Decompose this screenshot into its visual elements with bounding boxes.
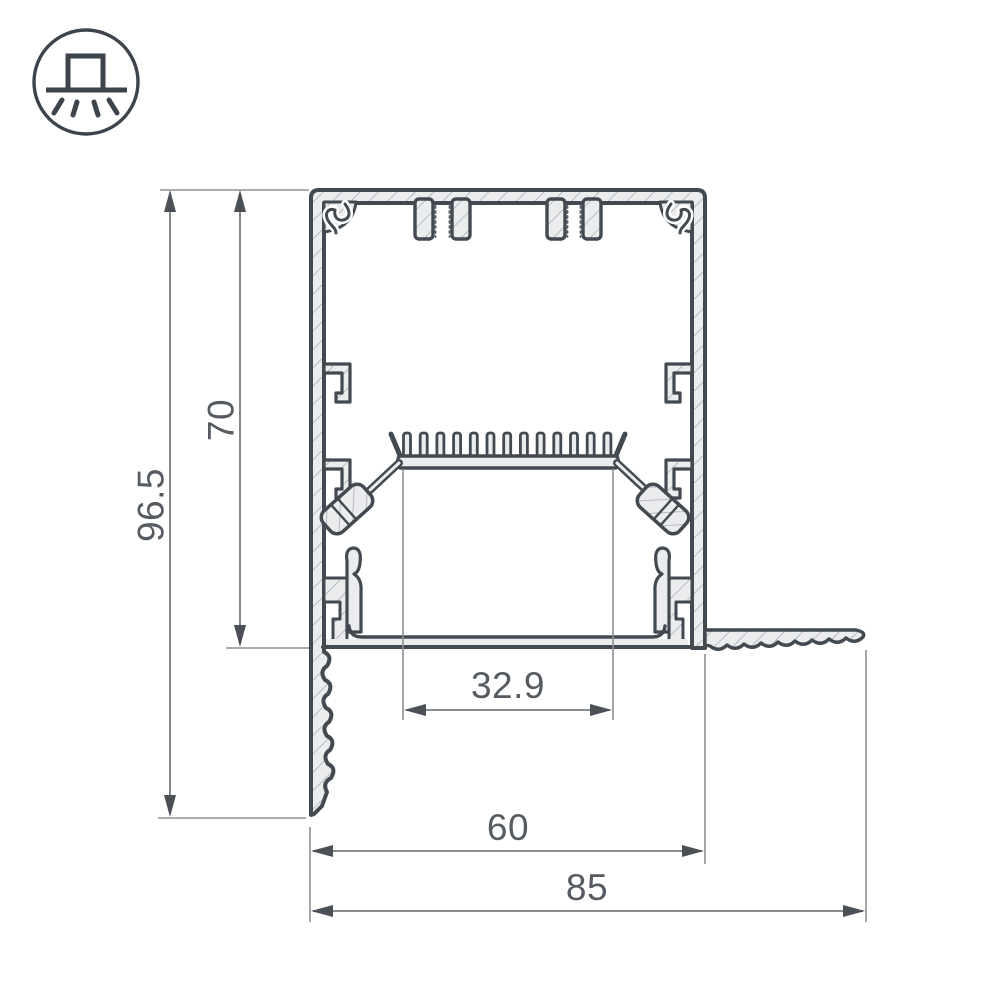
screw-groove-squiggle-right bbox=[667, 204, 690, 233]
arrow-up-icon bbox=[234, 190, 246, 212]
dimension-label-overall-width: 85 bbox=[566, 867, 608, 908]
icon-circle bbox=[34, 30, 138, 134]
corner-gussets bbox=[324, 202, 692, 233]
dimension-label-overall-height: 96.5 bbox=[131, 468, 172, 542]
led-plate bbox=[398, 456, 618, 468]
channel-lip-left bbox=[347, 548, 362, 632]
arrow-right-icon bbox=[843, 905, 865, 917]
dimension-overall-height: 96.5 bbox=[131, 190, 177, 817]
arrow-left-icon bbox=[311, 905, 333, 917]
dimension-overall-width: 85 bbox=[311, 867, 865, 917]
arrow-left-icon bbox=[404, 704, 426, 716]
dimension-body-width: 60 bbox=[311, 807, 704, 857]
led-plate-heatsink bbox=[369, 433, 647, 491]
arrow-left-icon bbox=[311, 845, 333, 857]
arrow-up-icon bbox=[164, 190, 176, 212]
dimension-body-height: 70 bbox=[201, 190, 247, 647]
dimension-label-body-width: 60 bbox=[487, 807, 529, 848]
heatsink-fins bbox=[404, 433, 611, 457]
arrow-down-icon bbox=[234, 625, 246, 647]
dimension-label-body-height: 70 bbox=[201, 399, 242, 441]
technical-drawing: 96.5 70 32.9 60 85 bbox=[0, 0, 1000, 1000]
dimension-label-inner-width: 32.9 bbox=[471, 665, 545, 706]
screw-groove-squiggle-left bbox=[326, 204, 349, 233]
channel-lip-right bbox=[655, 548, 670, 632]
dimension-inner-width: 32.9 bbox=[404, 665, 612, 716]
surface-ceiling-light-icon bbox=[34, 30, 138, 134]
arrow-right-icon bbox=[682, 845, 704, 857]
profile-cross-section bbox=[311, 190, 864, 815]
arrow-down-icon bbox=[164, 795, 176, 817]
drawing-page: 96.5 70 32.9 60 85 bbox=[0, 0, 1000, 1000]
diffuser-channel bbox=[323, 548, 692, 647]
arrow-right-icon bbox=[590, 704, 612, 716]
mounting-flange-right bbox=[705, 630, 864, 649]
